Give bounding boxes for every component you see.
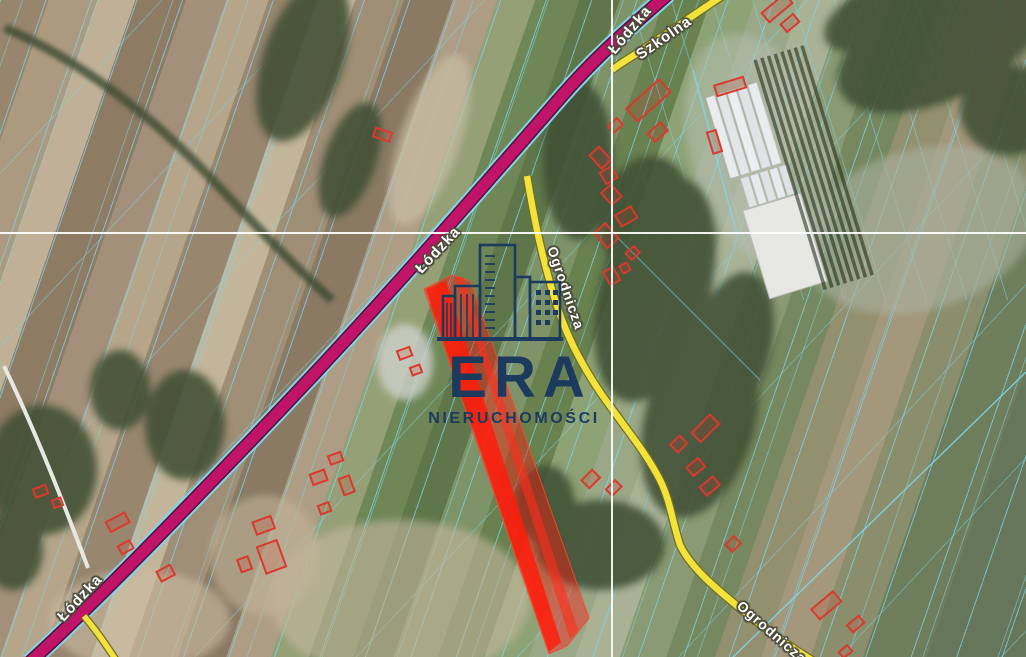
crosshair-horizontal-line [0, 232, 1026, 234]
watermark-subtitle: NIERUCHOMOŚCI [422, 410, 606, 428]
map-canvas[interactable]: Łódzka Łódzka Łódzka Szkolna Ogrodnicza … [0, 0, 1026, 657]
watermark-logo: ERA NIERUCHOMOŚCI [430, 238, 606, 428]
watermark-brand: ERA [434, 349, 606, 407]
buildings-icon [430, 238, 606, 342]
crosshair-vertical-line [611, 0, 613, 657]
